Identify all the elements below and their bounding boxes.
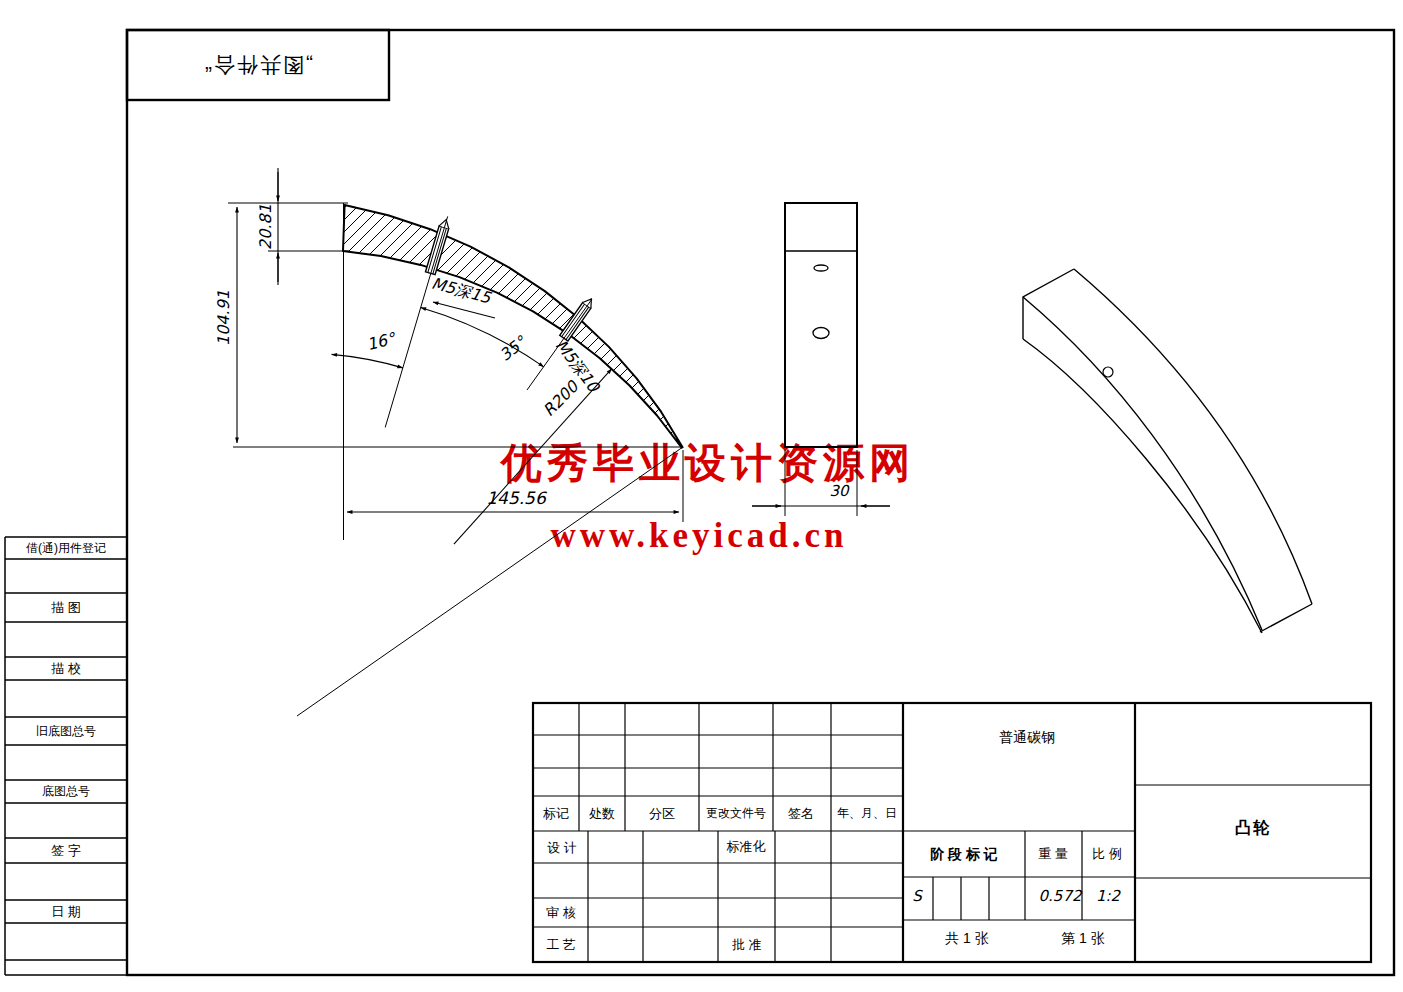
stage-value: S: [912, 889, 922, 904]
strip-old-master-no: 旧底图总号: [36, 725, 96, 737]
scale-label: 比 例: [1092, 847, 1122, 860]
dim-label-10491: 104.91: [216, 290, 232, 346]
cad-linework: [0, 0, 1403, 992]
stage-mark-label: 阶 段 标 记: [930, 847, 998, 861]
sheet-number: 第 1 张: [1061, 931, 1105, 945]
frame: [127, 30, 1394, 975]
role-standardization: 标准化: [727, 840, 766, 853]
role-audit: 审 核: [546, 906, 576, 919]
part-name: 凸轮: [1235, 820, 1271, 836]
rev-col-date: 年、月、日: [837, 807, 897, 819]
dim-label-30: 30: [829, 484, 848, 499]
dim-label-2081: 20.81: [258, 204, 274, 250]
corner-stamp: „图共件合“: [203, 55, 313, 76]
rev-col-zone: 分区: [649, 807, 675, 820]
rev-col-sign: 签名: [788, 807, 814, 820]
strip-borrow-record: 借(通)用件登记: [26, 542, 106, 554]
rev-col-count: 处数: [589, 807, 615, 820]
dim-arc-16: [332, 354, 403, 368]
role-approve: 批 准: [732, 938, 762, 951]
rev-col-mark: 标记: [543, 807, 569, 820]
strip-signature: 签 字: [51, 844, 81, 857]
iso-hole: [1103, 367, 1113, 377]
material: 普通碳钢: [999, 730, 1055, 744]
strip-date: 日 期: [51, 905, 81, 918]
sheets-total: 共 1 张: [945, 931, 989, 945]
scale-value: 1:2: [1096, 889, 1120, 904]
role-design: 设 计: [547, 841, 577, 854]
role-process: 工 艺: [546, 938, 576, 951]
weight-label: 重 量: [1038, 847, 1068, 860]
rev-col-doc-no: 更改文件号: [706, 807, 766, 819]
weight-value: 0.572: [1039, 889, 1082, 904]
isometric-view: [1023, 269, 1312, 633]
strip-trace-drawing: 描 图: [51, 601, 81, 614]
drawing-sheet: 优秀毕业设计资源网 www.keyicad.cn: [0, 0, 1403, 992]
dim-arc-35: [421, 308, 544, 367]
main-view: [228, 168, 683, 716]
cam-profile: [343, 205, 683, 448]
side-view: [752, 203, 890, 516]
strip-trace-check: 描 校: [51, 662, 81, 675]
dim-label-14556: 145.56: [486, 490, 545, 507]
strip-master-no: 底图总号: [42, 785, 90, 797]
